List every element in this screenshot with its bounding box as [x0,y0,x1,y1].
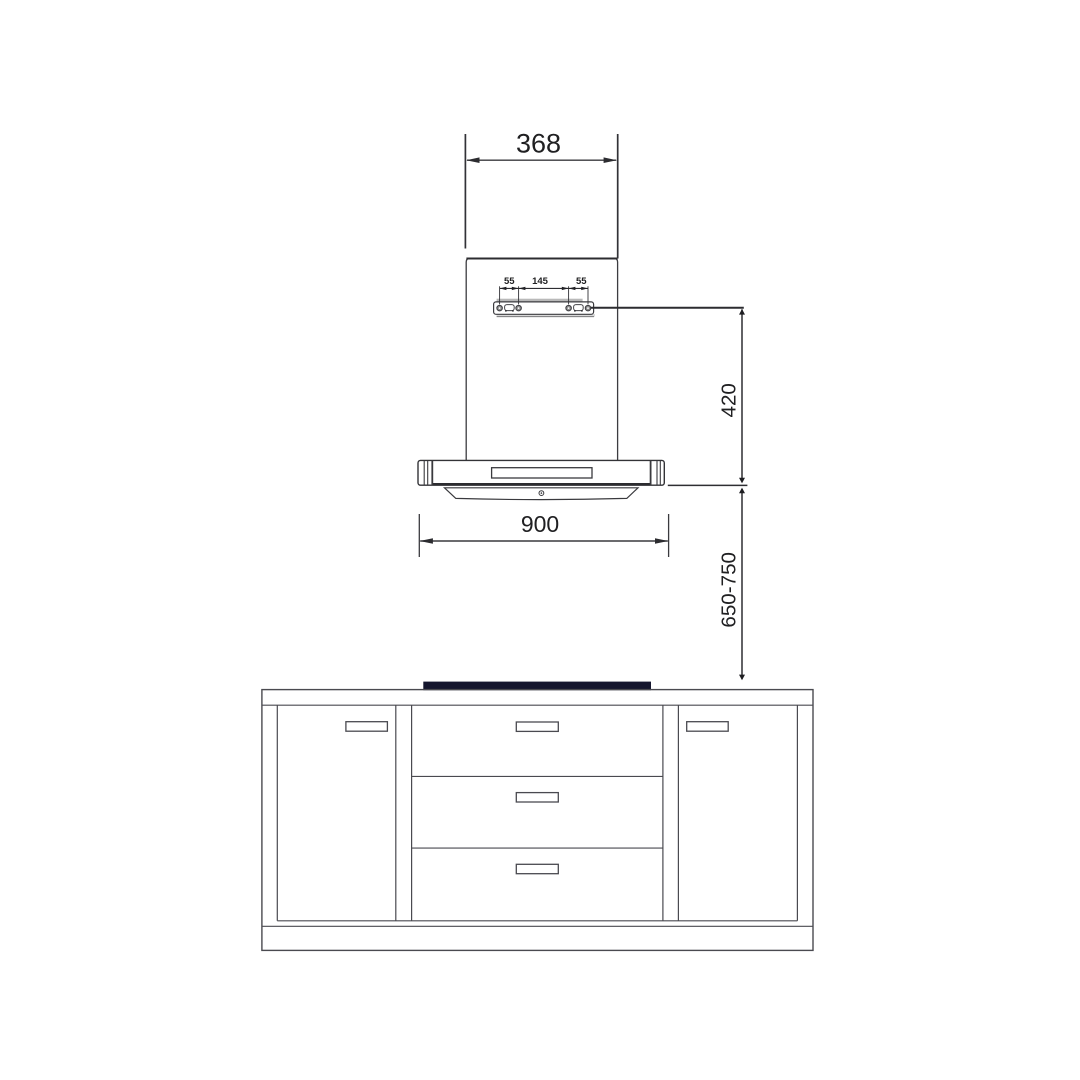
svg-text:55: 55 [576,276,587,287]
svg-text:55: 55 [504,276,515,287]
svg-text:650-750: 650-750 [718,552,741,628]
svg-text:368: 368 [516,129,561,159]
svg-text:420: 420 [718,383,741,417]
svg-text:900: 900 [521,511,559,537]
svg-text:145: 145 [532,276,549,287]
